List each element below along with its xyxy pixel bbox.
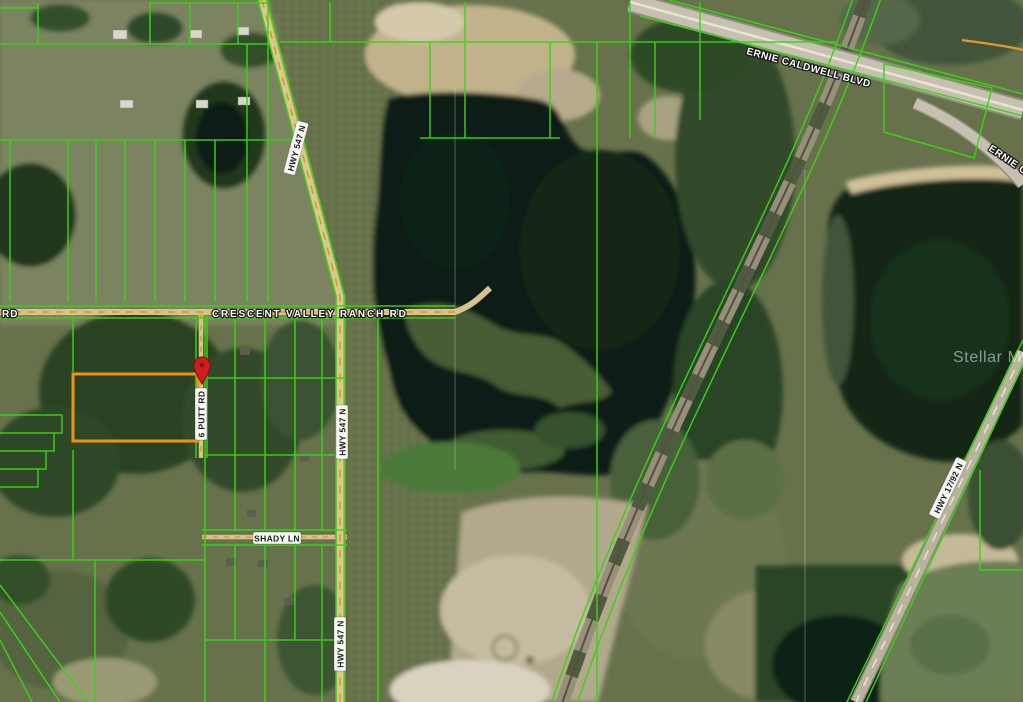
scrub-patch [705,440,785,520]
forest-patch [260,320,340,440]
house-roof [120,100,133,108]
road-label-six-putt-rd: 6 PUTT RD [195,388,207,440]
forest-patch [105,558,195,642]
road-label-text: HWY 547 N [336,620,346,667]
house-roof [113,30,127,39]
house-roof [190,30,202,38]
road-label-text: HWY 547 N [338,408,348,455]
map-canvas[interactable]: ERNIE CALDWELL BLVD ERNIE CALDWELL BLVD … [0,0,1023,702]
road-label-crescent-valley-ranch-rd: CRESCENT VALLEY RANCH RD [212,309,408,320]
road-label-text: 6 PUTT RD [197,391,207,438]
field-detail [526,656,534,664]
stellar-mls-watermark: Stellar MLS [953,349,1023,366]
road-label-text: SHADY LN [254,534,300,544]
road-label-hwy-547-n-middle: HWY 547 N [336,405,348,459]
house-roof [247,510,256,517]
house-roof [237,27,249,35]
house-roof [238,97,250,105]
meadow-bright [380,442,520,494]
sand-patch [375,2,465,42]
pin-center-dot [200,363,205,368]
house-roof [300,455,309,461]
road-label-hwy-547-n-lower: HWY 547 N [334,617,346,671]
field-light-patch [440,555,590,665]
house-roof [196,100,208,108]
lake-southeast-green-deep [910,615,990,675]
map-viewport: ERNIE CALDWELL BLVD ERNIE CALDWELL BLVD … [0,0,1023,702]
house-roof [258,560,268,567]
forest-patch [30,4,90,32]
forest-patch [127,12,183,44]
pond-northwest [196,102,248,174]
lake-center-deep [520,150,680,350]
road-label-rd-partial: RD [2,309,18,320]
house-roof [240,348,250,355]
house-roof [284,598,294,605]
road-label-shady-ln: SHADY LN [253,532,301,544]
lake-east-deep [870,240,1010,400]
shore-scrub [822,215,854,385]
lake-marsh [535,412,605,448]
